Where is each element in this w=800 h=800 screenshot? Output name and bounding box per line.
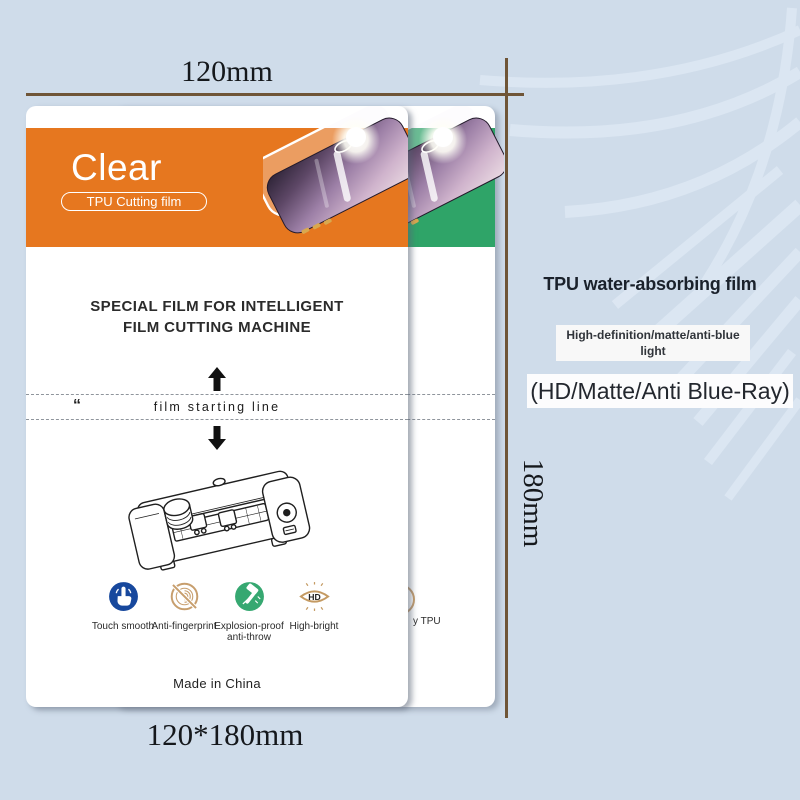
right-panel-tag-box: High-definition/matte/anti-blue light (556, 325, 750, 361)
machine-heading: SPECIAL FILM FOR INTELLIGENT FILM CUTTIN… (26, 296, 408, 338)
size-dimension-label: 120*180mm (125, 717, 325, 753)
width-dimension-line (26, 93, 524, 96)
front-product-card: Clear TPU Cutting film (26, 106, 408, 707)
hd-text: HD (308, 592, 321, 602)
right-panel-subtitle-box: (HD/Matte/Anti Blue-Ray) (527, 374, 793, 408)
film-starting-line-label: film starting line (26, 400, 408, 414)
tag-line2: light (556, 343, 750, 359)
product-badge: TPU Cutting film (61, 192, 207, 211)
height-dimension-label: 180mm (519, 441, 549, 565)
height-dimension-line (505, 58, 508, 718)
tag-line1: High-definition/matte/anti-blue (556, 327, 750, 343)
machine-heading-line1: SPECIAL FILM FOR INTELLIGENT (26, 296, 408, 317)
feature-label: High-bright (269, 621, 359, 632)
explosion-proof-icon (233, 580, 266, 613)
right-panel-title: TPU water-absorbing film (535, 274, 765, 295)
made-in-label: Made in China (26, 676, 408, 691)
phone-image (263, 106, 408, 252)
product-banner: 120mm 180mm 120*180mm (0, 0, 800, 800)
high-bright-icon: HD (298, 580, 331, 613)
feature-high-bright: HD High-bright (269, 580, 359, 632)
arrow-down-icon (208, 426, 226, 450)
arrow-up-icon (208, 367, 226, 391)
width-dimension-label: 120mm (127, 55, 327, 89)
feature-label-line2: anti-throw (204, 632, 294, 643)
cutting-machine-drawing (123, 454, 315, 580)
product-title: Clear (71, 146, 162, 190)
back-partial-feature-label: y TPU (413, 616, 441, 627)
machine-heading-line2: FILM CUTTING MACHINE (26, 317, 408, 338)
anti-fingerprint-icon (168, 580, 201, 613)
touch-icon (107, 580, 140, 613)
film-start-dash-bottom (26, 419, 408, 420)
film-start-dash-top (26, 394, 408, 395)
